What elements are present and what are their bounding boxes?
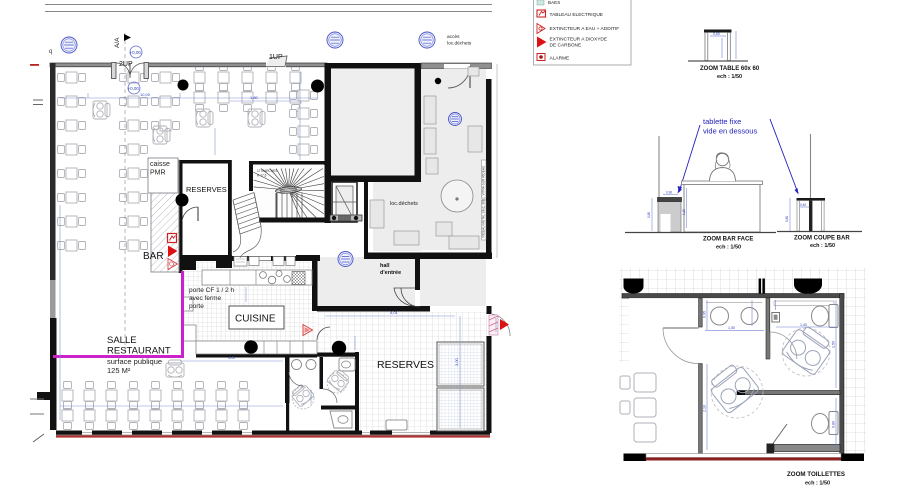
svg-text:1UP: 1UP — [269, 54, 283, 61]
svg-text:RESERVES: RESERVES — [186, 185, 227, 194]
svg-text:0,95: 0,95 — [703, 311, 707, 318]
svg-text:A/A: A/A — [114, 37, 121, 48]
svg-text:EXTINCTEUR A DIOXYDE: EXTINCTEUR A DIOXYDE — [550, 37, 608, 43]
svg-text:0,40: 0,40 — [800, 203, 806, 207]
svg-text:1,50: 1,50 — [832, 341, 836, 348]
svg-text:2,10: 2,10 — [703, 405, 707, 412]
svg-text:1,80: 1,80 — [250, 95, 259, 100]
svg-text:porte: porte — [189, 303, 204, 310]
svg-text:PMR: PMR — [150, 170, 166, 177]
svg-text:EXTINCTEUR A EAU + ADDITIF: EXTINCTEUR A EAU + ADDITIF — [550, 26, 620, 32]
svg-text:CUISINE: CUISINE — [235, 314, 276, 325]
svg-text:avec ferme: avec ferme — [189, 295, 222, 302]
svg-text:q: q — [49, 49, 52, 55]
svg-text:porte CF 1 / 2 h: porte CF 1 / 2 h — [189, 287, 235, 294]
svg-text:caisse: caisse — [150, 161, 170, 168]
svg-text:4,01: 4,01 — [390, 310, 399, 315]
svg-text:RESTAURANT: RESTAURANT — [107, 346, 171, 357]
svg-text:VITRA SUR RIDEAU: VITRA SUR RIDEAU — [482, 165, 486, 195]
svg-text:BAES: BAES — [548, 0, 560, 5]
svg-text:17 MARCHES: 17 MARCHES — [257, 169, 277, 173]
svg-text:vide en dessous: vide en dessous — [703, 127, 757, 136]
svg-text:+0,00: +0,00 — [130, 50, 142, 55]
svg-text:0,80: 0,80 — [647, 212, 651, 218]
svg-text:TABLEAU ELECTRIQUE: TABLEAU ELECTRIQUE — [550, 12, 604, 18]
svg-text:ZOOM TABLE 60x 60: ZOOM TABLE 60x 60 — [700, 66, 760, 72]
svg-text:surface publique: surface publique — [107, 357, 162, 366]
svg-text:RIDEAU METAL 93x2, 300: RIDEAU METAL 93x2, 300 — [482, 199, 486, 237]
svg-text:3,00: 3,00 — [454, 357, 459, 366]
svg-text:ZOOM BAR FACE: ZOOM BAR FACE — [703, 237, 753, 243]
svg-text:1,40: 1,40 — [800, 323, 807, 327]
svg-text:ZOOM TOILLETTES: ZOOM TOILLETTES — [787, 471, 845, 478]
svg-text:SALLE: SALLE — [107, 335, 137, 346]
svg-text:0,90: 0,90 — [666, 191, 672, 195]
svg-text:ech : 1/50: ech : 1/50 — [716, 245, 741, 251]
svg-text:0,80: 0,80 — [832, 421, 836, 428]
svg-text:ALARME: ALARME — [550, 56, 570, 62]
svg-text:loc.déchets: loc.déchets — [390, 201, 418, 207]
svg-text:125 M²: 125 M² — [107, 366, 131, 375]
svg-text:+0,00: +0,00 — [128, 86, 140, 91]
svg-text:accès: accès — [447, 34, 460, 40]
svg-text:H 17,6: H 17,6 — [257, 174, 267, 178]
svg-text:DE CARBONE: DE CARBONE — [550, 43, 582, 49]
svg-text:tablette fixe: tablette fixe — [703, 117, 741, 126]
svg-text:1,50: 1,50 — [728, 326, 735, 330]
svg-text:1,10: 1,10 — [682, 209, 686, 215]
svg-text:10,00: 10,00 — [140, 92, 151, 97]
svg-text:ZOOM COUPE BAR: ZOOM COUPE BAR — [794, 236, 850, 242]
svg-text:0,60: 0,60 — [713, 32, 720, 36]
svg-text:ech : 1/50: ech : 1/50 — [810, 243, 835, 249]
svg-text:loc.déchets: loc.déchets — [447, 41, 472, 47]
svg-text:d'entrée: d'entrée — [380, 270, 401, 276]
svg-text:BAR: BAR — [143, 251, 164, 262]
svg-text:2UP: 2UP — [119, 61, 133, 68]
svg-text:ech : 1/50: ech : 1/50 — [805, 481, 830, 487]
svg-text:RESERVES: RESERVES — [377, 359, 434, 371]
svg-text:0,80: 0,80 — [785, 216, 789, 222]
svg-text:hall: hall — [380, 263, 390, 269]
svg-text:ech : 1/50: ech : 1/50 — [717, 74, 742, 80]
svg-text:4,67: 4,67 — [228, 355, 237, 360]
